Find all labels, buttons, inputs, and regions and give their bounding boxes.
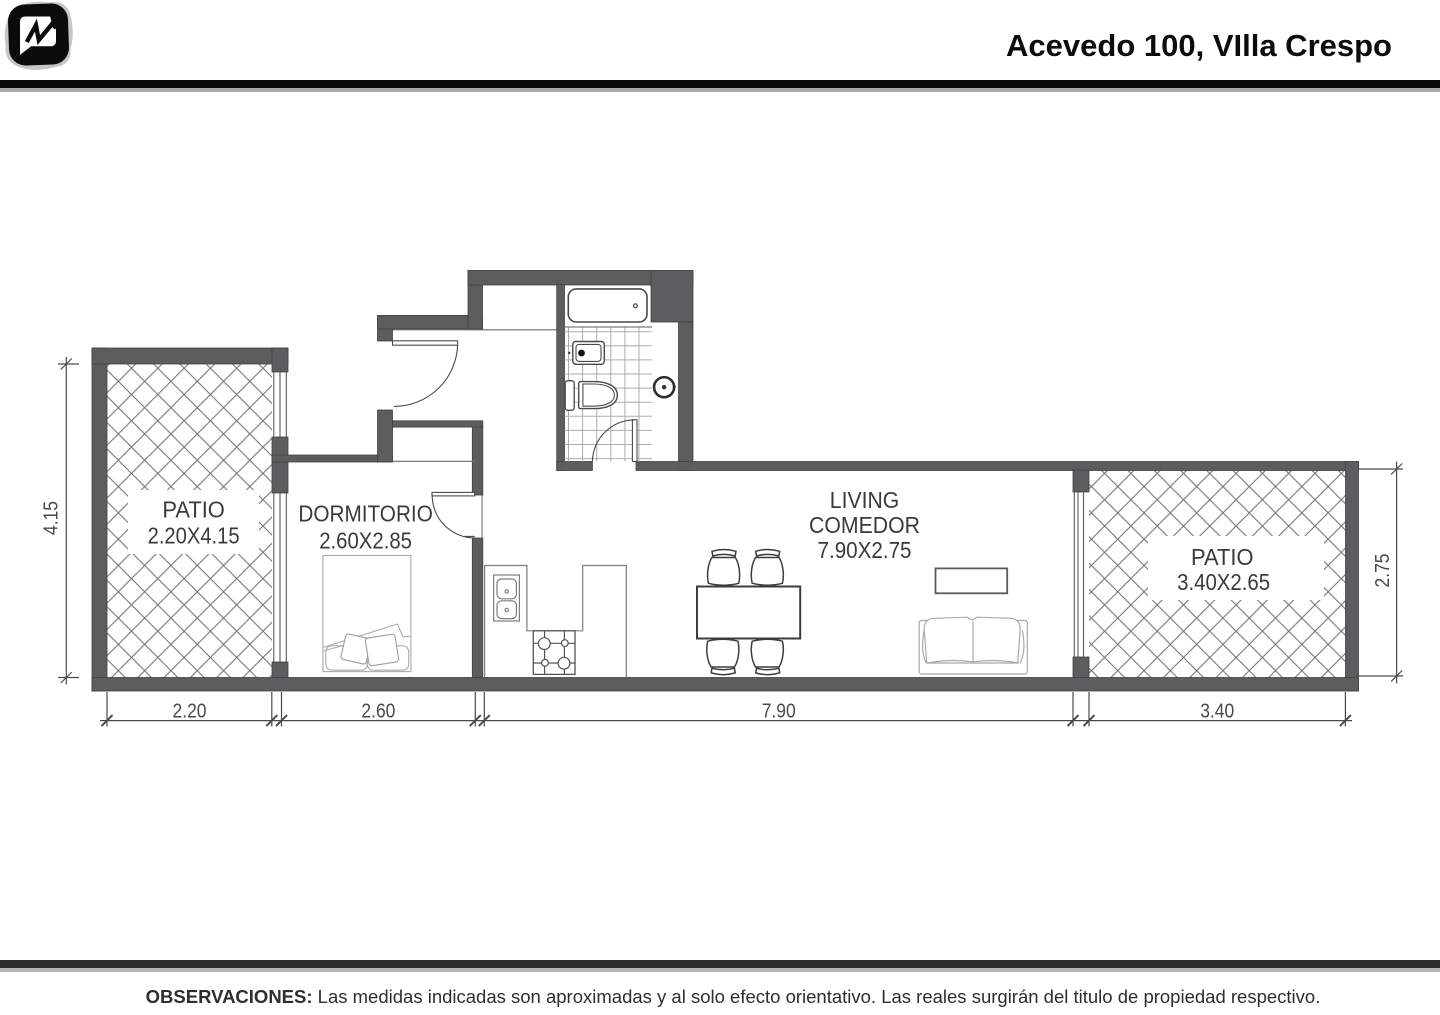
- svg-text:2.20X4.15: 2.20X4.15: [148, 523, 240, 549]
- svg-text:DORMITORIO: DORMITORIO: [298, 501, 433, 527]
- svg-text:7.90X2.75: 7.90X2.75: [818, 537, 912, 563]
- svg-text:7.90: 7.90: [762, 701, 796, 723]
- svg-text:PATIO: PATIO: [1191, 544, 1254, 570]
- svg-text:2.60: 2.60: [361, 701, 395, 723]
- svg-text:2.75: 2.75: [1372, 554, 1394, 588]
- svg-text:PATIO: PATIO: [162, 497, 225, 523]
- svg-text:LIVING: LIVING: [830, 487, 899, 513]
- svg-text:4.15: 4.15: [41, 501, 63, 535]
- svg-text:COMEDOR: COMEDOR: [809, 512, 920, 538]
- svg-text:2.60X2.85: 2.60X2.85: [319, 528, 412, 554]
- svg-text:3.40: 3.40: [1200, 701, 1234, 723]
- svg-text:2.20: 2.20: [173, 701, 207, 723]
- svg-text:3.40X2.65: 3.40X2.65: [1177, 569, 1270, 595]
